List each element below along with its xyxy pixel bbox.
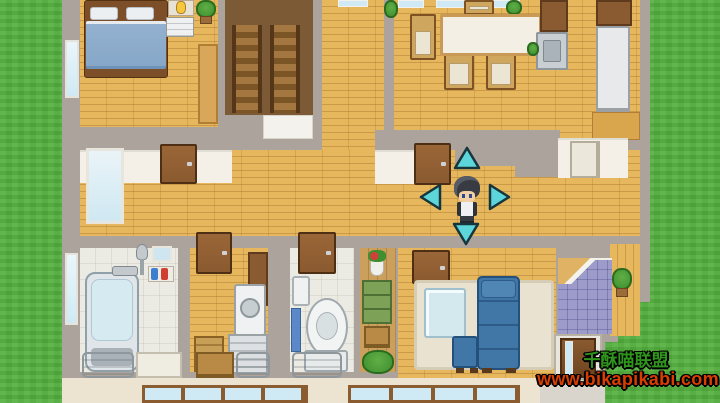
move-down-arrow[interactable] — [452, 221, 480, 246]
game-viewport: 千酥喵联盟 www.bikapikabi.com — [0, 0, 720, 403]
storage-box-white — [136, 352, 182, 378]
move-left-arrow[interactable] — [418, 183, 443, 211]
wooden-crate — [196, 352, 234, 378]
player-eye-right — [469, 194, 472, 198]
move-right-arrow[interactable] — [487, 183, 512, 211]
move-up-arrow[interactable] — [453, 146, 481, 171]
player-character — [452, 176, 482, 226]
watermark-site-url: www.bikapikabi.com — [536, 369, 720, 390]
watermark-group-name: 千酥喵联盟 — [566, 346, 686, 371]
ac-unit-2 — [236, 352, 270, 378]
ac-unit-1 — [82, 352, 134, 378]
player-body — [457, 202, 477, 216]
outer-wall-objects — [0, 0, 720, 403]
ac-unit-3 — [292, 352, 342, 378]
player-eye-left — [462, 194, 465, 198]
